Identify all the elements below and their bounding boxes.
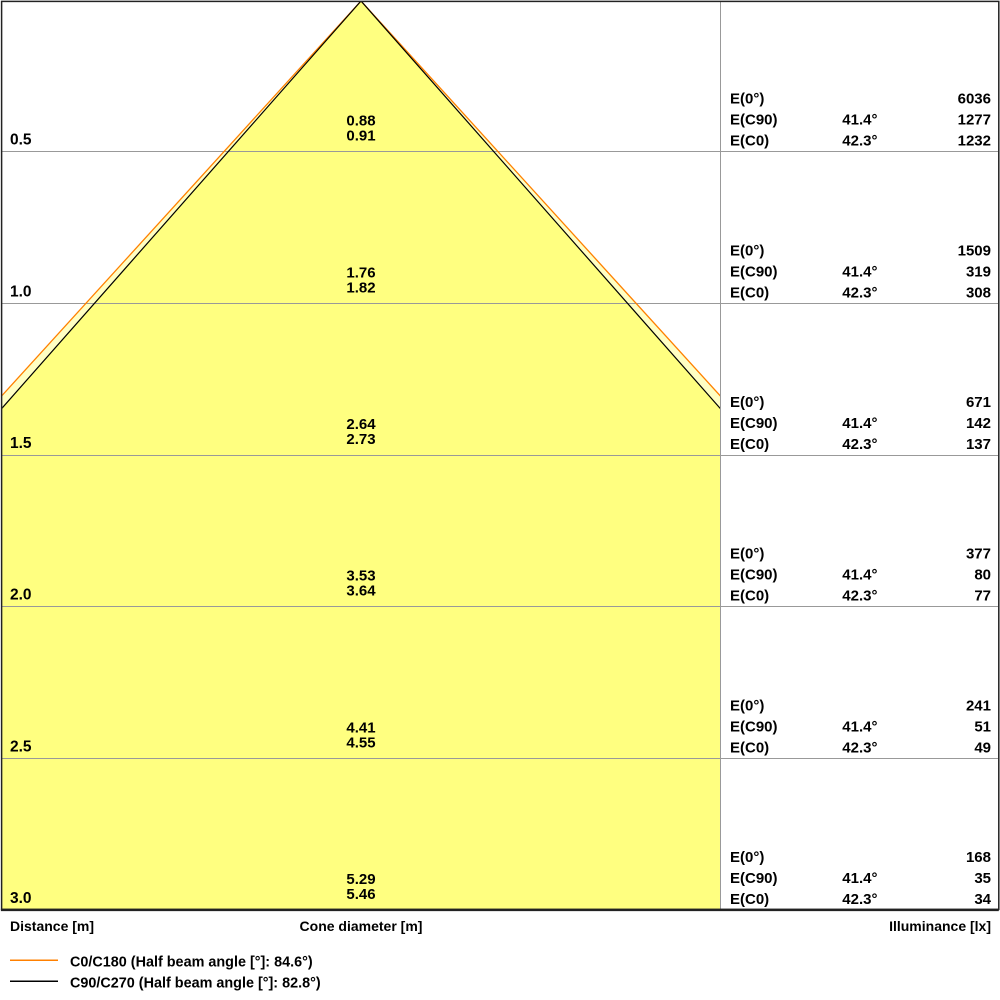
svg-text:E(0°): E(0°) — [730, 242, 764, 259]
svg-text:1.82: 1.82 — [346, 279, 375, 296]
svg-text:168: 168 — [966, 849, 991, 866]
svg-text:0.91: 0.91 — [346, 128, 375, 145]
svg-text:80: 80 — [974, 567, 991, 584]
svg-text:E(C0): E(C0) — [730, 436, 769, 453]
svg-text:E(C0): E(C0) — [730, 133, 769, 150]
svg-text:142: 142 — [966, 415, 991, 432]
svg-text:77: 77 — [974, 588, 991, 605]
svg-text:C0/C180 (Half beam angle [°]:: C0/C180 (Half beam angle [°]: 84.6°) — [70, 955, 313, 971]
svg-text:E(C90): E(C90) — [730, 263, 778, 280]
svg-text:5.46: 5.46 — [346, 886, 375, 903]
svg-text:308: 308 — [966, 284, 991, 301]
svg-text:1277: 1277 — [958, 112, 991, 129]
svg-text:6036: 6036 — [958, 91, 991, 108]
svg-text:671: 671 — [966, 394, 991, 411]
svg-text:C90/C270 (Half beam angle [°]:: C90/C270 (Half beam angle [°]: 82.8°) — [70, 976, 321, 992]
svg-text:E(C0): E(C0) — [730, 891, 769, 908]
svg-text:E(C0): E(C0) — [730, 588, 769, 605]
svg-text:137: 137 — [966, 436, 991, 453]
svg-text:2.5: 2.5 — [10, 738, 32, 755]
svg-text:41.4°: 41.4° — [842, 112, 877, 129]
svg-text:1.5: 1.5 — [10, 435, 32, 452]
svg-text:41.4°: 41.4° — [842, 263, 877, 280]
svg-text:1232: 1232 — [958, 133, 991, 150]
svg-text:49: 49 — [974, 739, 991, 756]
svg-text:42.3°: 42.3° — [842, 588, 877, 605]
svg-text:E(C90): E(C90) — [730, 112, 778, 129]
svg-text:41.4°: 41.4° — [842, 870, 877, 887]
svg-text:1.0: 1.0 — [10, 283, 32, 300]
svg-text:0.5: 0.5 — [10, 132, 32, 149]
svg-text:E(C90): E(C90) — [730, 718, 778, 735]
svg-text:E(C90): E(C90) — [730, 567, 778, 584]
svg-text:Distance [m]: Distance [m] — [10, 918, 94, 934]
svg-text:319: 319 — [966, 263, 991, 280]
svg-text:41.4°: 41.4° — [842, 718, 877, 735]
svg-text:42.3°: 42.3° — [842, 436, 877, 453]
svg-text:4.55: 4.55 — [346, 734, 375, 751]
svg-text:E(0°): E(0°) — [730, 91, 764, 108]
svg-text:377: 377 — [966, 546, 991, 563]
svg-text:42.3°: 42.3° — [842, 891, 877, 908]
svg-text:E(0°): E(0°) — [730, 849, 764, 866]
svg-text:E(0°): E(0°) — [730, 546, 764, 563]
svg-text:41.4°: 41.4° — [842, 567, 877, 584]
svg-text:35: 35 — [974, 870, 991, 887]
svg-text:34: 34 — [974, 891, 991, 908]
svg-text:E(C0): E(C0) — [730, 739, 769, 756]
svg-text:E(C90): E(C90) — [730, 415, 778, 432]
svg-text:1509: 1509 — [958, 242, 991, 259]
svg-text:2.0: 2.0 — [10, 587, 32, 604]
svg-text:51: 51 — [974, 718, 991, 735]
svg-text:241: 241 — [966, 697, 991, 714]
svg-text:E(0°): E(0°) — [730, 697, 764, 714]
svg-text:E(C90): E(C90) — [730, 870, 778, 887]
svg-text:Illuminance [lx]: Illuminance [lx] — [889, 918, 991, 934]
svg-text:42.3°: 42.3° — [842, 133, 877, 150]
svg-text:42.3°: 42.3° — [842, 739, 877, 756]
svg-text:42.3°: 42.3° — [842, 284, 877, 301]
svg-text:E(0°): E(0°) — [730, 394, 764, 411]
svg-text:41.4°: 41.4° — [842, 415, 877, 432]
svg-text:3.64: 3.64 — [346, 583, 376, 600]
svg-text:Cone diameter [m]: Cone diameter [m] — [300, 918, 423, 934]
svg-text:2.73: 2.73 — [346, 431, 375, 448]
svg-text:3.0: 3.0 — [10, 890, 32, 907]
svg-text:E(C0): E(C0) — [730, 284, 769, 301]
